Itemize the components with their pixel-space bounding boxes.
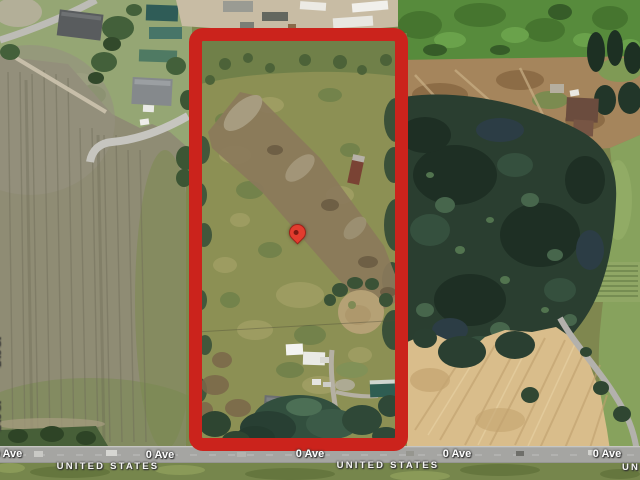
side-street-label: 248 St: [0, 402, 3, 431]
country-label: UNITED STATES: [337, 460, 440, 471]
map-viewport[interactable]: 0 Ave 0 Ave 0 Ave 0 Ave 0 Ave UNITED STA…: [0, 0, 640, 480]
side-street-label: 248 St: [0, 338, 3, 367]
road-label-0-ave: 0 Ave: [443, 448, 472, 460]
country-label: UNITED STATES: [622, 462, 640, 473]
road-label-0-ave: 0 Ave: [593, 448, 622, 460]
road-label-0-ave: 0 Ave: [0, 448, 22, 460]
road-label-0-ave: 0 Ave: [296, 448, 325, 460]
road-label-0-ave: 0 Ave: [146, 449, 175, 461]
country-label: UNITED STATES: [57, 461, 160, 472]
